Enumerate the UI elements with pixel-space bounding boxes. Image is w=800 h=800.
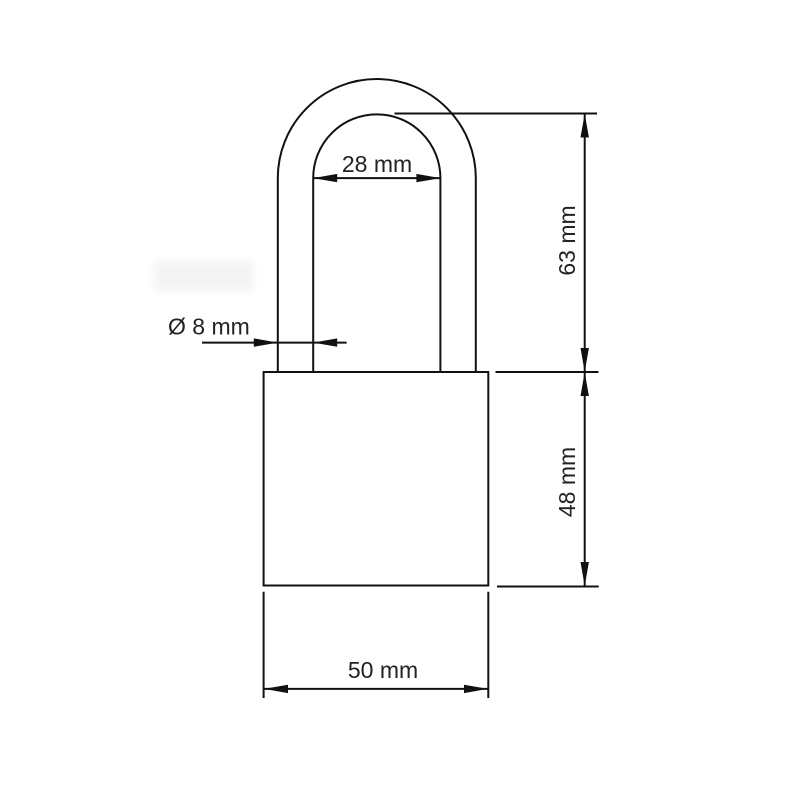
svg-text:50 mm: 50 mm bbox=[348, 657, 418, 683]
svg-text:28 mm: 28 mm bbox=[342, 151, 412, 177]
svg-text:Ø 8 mm: Ø 8 mm bbox=[168, 314, 250, 340]
svg-text:63 mm: 63 mm bbox=[554, 205, 580, 275]
svg-text:48 mm: 48 mm bbox=[554, 447, 580, 517]
